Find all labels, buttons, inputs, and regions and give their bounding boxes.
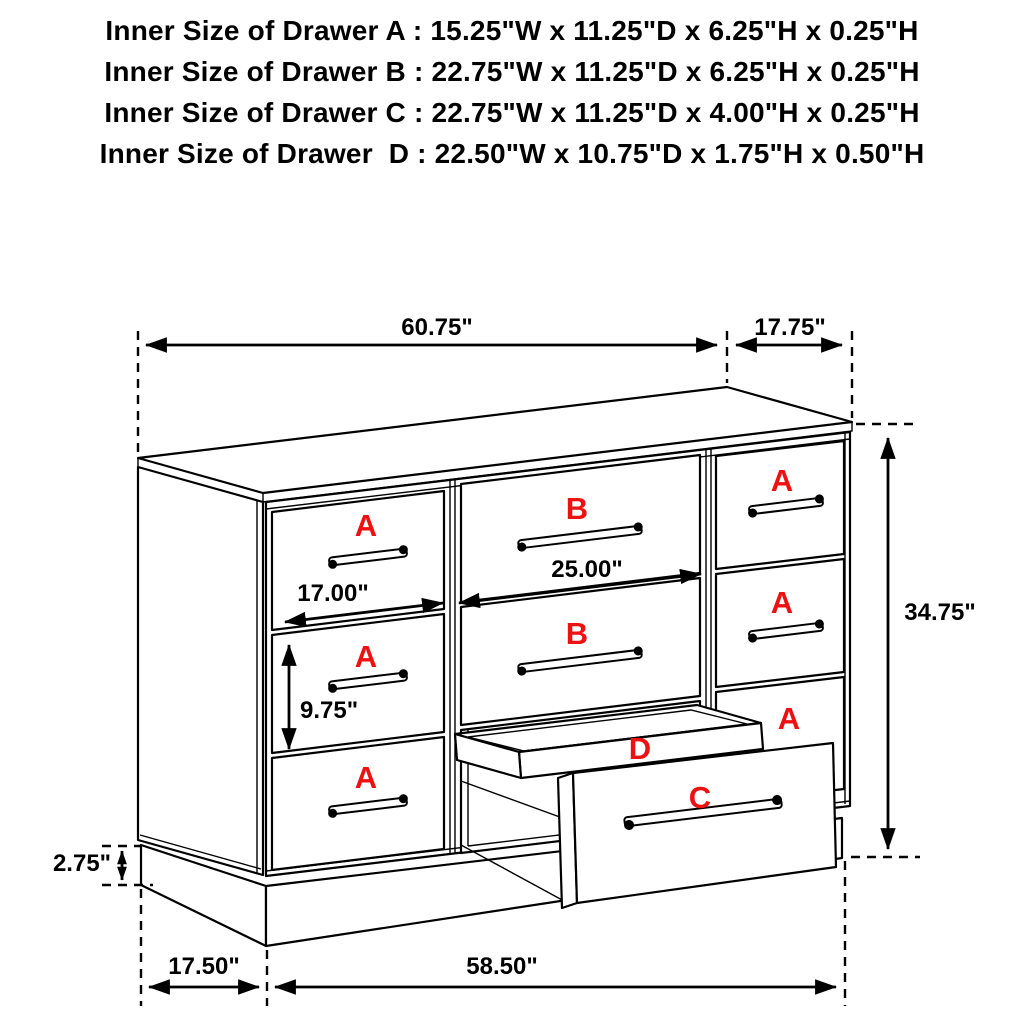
label-drawer-c: C (689, 780, 711, 815)
dresser-drawing (138, 387, 852, 946)
dim-label-top-width: 60.75" (401, 314, 472, 341)
dresser-left-side-panel (138, 467, 263, 875)
dim-label-left-drawer-width: 17.00" (297, 580, 368, 607)
label-drawer-d: D (629, 731, 651, 766)
label-drawer-b-bottom: B (566, 616, 588, 651)
drawer-a-right-middle (716, 559, 844, 687)
label-drawer-a-right-middle: A (771, 585, 793, 620)
dim-label-base-side-depth: 17.50" (168, 953, 239, 980)
dim-label-middle-drawer-width: 25.00" (551, 556, 622, 583)
label-drawer-a-left-top: A (355, 508, 377, 543)
label-drawer-a-left-bottom: A (355, 760, 377, 795)
label-drawer-a-right-top: A (771, 463, 793, 498)
label-drawer-a-left-middle: A (355, 639, 377, 674)
dim-label-top-depth: 17.75" (754, 314, 825, 341)
label-drawer-a-right-bottom: A (778, 701, 800, 736)
dim-label-overall-height: 34.75" (904, 599, 975, 626)
dim-label-drawer-height: 9.75" (300, 697, 358, 724)
dim-label-base-front-width: 58.50" (466, 953, 537, 980)
label-drawer-b-top: B (566, 491, 588, 526)
dresser-dimension-diagram: A A A B B A A A D C (0, 0, 1024, 1024)
page-background: Inner Size of Drawer A : 15.25"W x 11.25… (0, 0, 1024, 1024)
dim-label-base-height: 2.75" (53, 850, 111, 877)
